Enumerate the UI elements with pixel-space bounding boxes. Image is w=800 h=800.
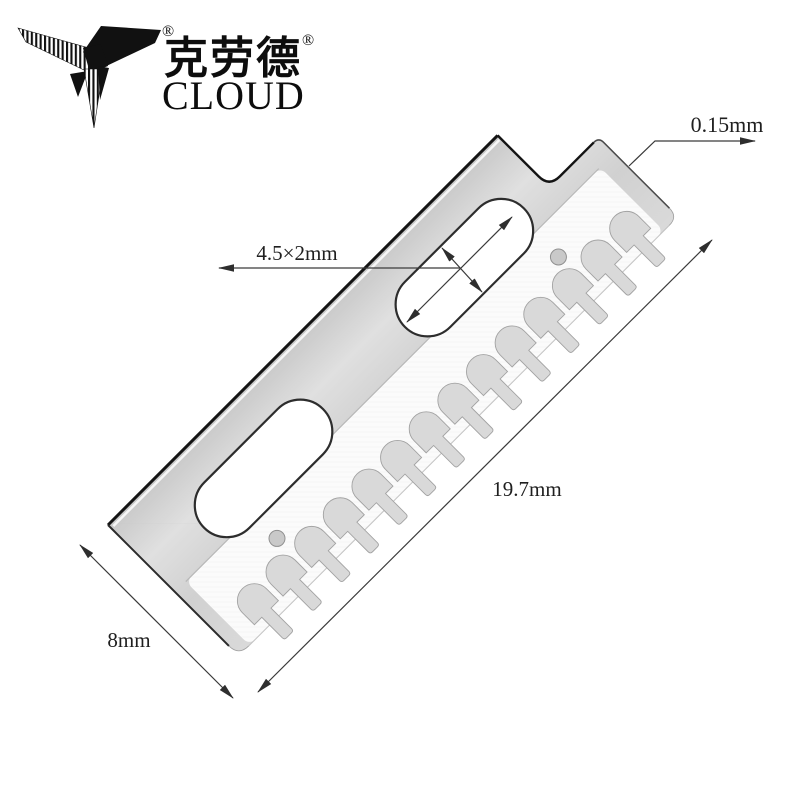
blade-diagram: 0.15mm 4.5×2mm 19.7mm 8mm ® 克劳德 ® CLOUD xyxy=(0,0,800,800)
brand-name-latin: CLOUD xyxy=(162,73,305,118)
product-diagram-page: 0.15mm 4.5×2mm 19.7mm 8mm ® 克劳德 ® CLOUD xyxy=(0,0,800,800)
slot-size-label: 4.5×2mm xyxy=(256,241,337,265)
bird-tail-solid xyxy=(98,66,109,100)
thickness-label: 0.15mm xyxy=(691,112,764,137)
brand-cjk-registered-icon: ® xyxy=(302,32,314,49)
bird-logo-mark xyxy=(18,26,161,128)
blade-body-texture xyxy=(108,86,678,656)
length-label: 19.7mm xyxy=(492,477,561,501)
width-label: 8mm xyxy=(107,628,150,652)
brand-logo: ® 克劳德 ® CLOUD xyxy=(18,23,314,128)
thickness-leader-line xyxy=(629,141,755,166)
blade-illustration xyxy=(108,86,693,671)
